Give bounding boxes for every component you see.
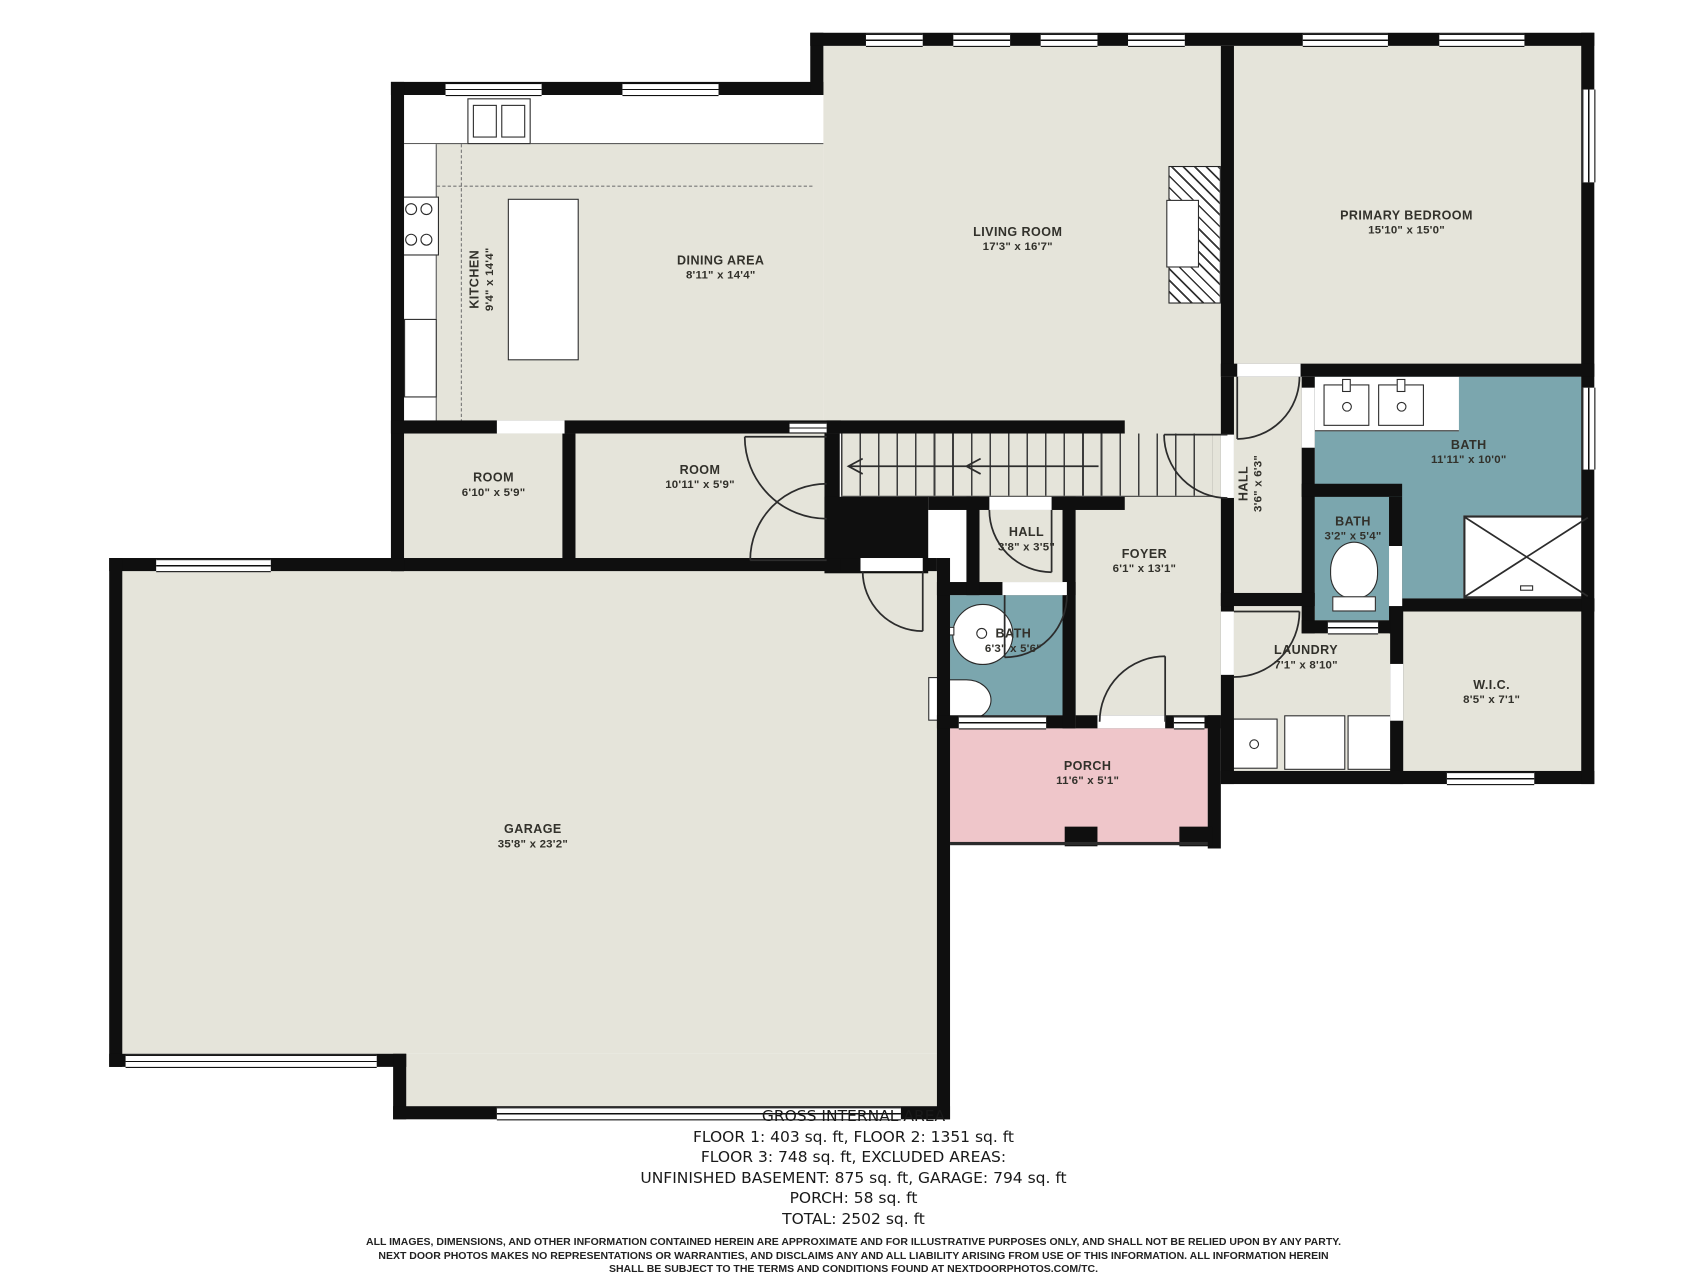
cabinet-dashed-line [437, 186, 813, 187]
room-dims: 6'3" x 5'6" [948, 643, 1079, 657]
cabinet-dashed-line [461, 144, 462, 428]
door-opening [1002, 582, 1066, 595]
faucet-icon [1342, 379, 1351, 392]
summary-line: FLOOR 1: 403 sq. ft, FLOOR 2: 1351 sq. f… [0, 1127, 1707, 1148]
room-dims: 8'5" x 7'1" [1404, 694, 1579, 708]
room-label-bath-main: BATH 6'3" x 5'6" [948, 627, 1079, 657]
wall [109, 558, 122, 1067]
disclaimer-line: NEXT DOOR PHOTOS MAKES NO REPRESENTATION… [0, 1250, 1707, 1264]
disclaimer: ALL IMAGES, DIMENSIONS, AND OTHER INFORM… [0, 1236, 1707, 1277]
wall [1302, 484, 1402, 497]
window [446, 83, 542, 96]
window [126, 1055, 377, 1068]
burner-icon [405, 234, 417, 246]
window [959, 716, 1046, 729]
room-name: HALL [1236, 429, 1252, 538]
window [156, 559, 271, 572]
wall [391, 420, 841, 433]
window [1582, 90, 1595, 183]
room-label-hall-small: HALL 3'8" x 3'5" [972, 525, 1081, 555]
drain-icon [1249, 739, 1259, 749]
room-dims: 10'11" x 5'9" [613, 479, 788, 493]
door-opening [860, 558, 922, 571]
wall [827, 420, 1125, 433]
kitchen-sink-basin [501, 105, 525, 138]
summary-line: UNFINISHED BASEMENT: 875 sq. ft, GARAGE:… [0, 1168, 1707, 1189]
window [1128, 34, 1185, 47]
door-opening [1221, 435, 1234, 498]
floor-garage [122, 571, 937, 1054]
wall [391, 558, 841, 571]
window [1303, 34, 1388, 47]
burner-icon [405, 203, 417, 215]
toilet-tank [1332, 596, 1376, 611]
room-name: BATH [1381, 438, 1556, 454]
floor-primary-bedroom [1234, 46, 1581, 364]
room-dims: 11'6" x 5'1" [1000, 775, 1175, 789]
room-label-laundry: LAUNDRY 7'1" x 8'10" [1219, 643, 1394, 673]
room-dims: 15'10" x 15'0" [1297, 224, 1515, 238]
room-label-wic: W.I.C. 8'5" x 7'1" [1404, 678, 1579, 708]
area-summary: GROSS INTERNAL AREA FLOOR 1: 403 sq. ft,… [0, 1106, 1707, 1229]
window [866, 34, 923, 47]
room-dims: 3'8" x 3'5" [972, 541, 1081, 555]
room-dims: 9'4" x 14'4" [483, 225, 497, 334]
summary-line: PORCH: 58 sq. ft [0, 1188, 1707, 1209]
room-name: BATH [1298, 514, 1407, 530]
wall [1221, 593, 1315, 606]
door-opening [1302, 388, 1315, 448]
wall [391, 82, 404, 571]
room-name: ROOM [613, 463, 788, 479]
room-name: LAUNDRY [1219, 643, 1394, 659]
fireplace-insert [1166, 200, 1199, 268]
room-dims: 35'8" x 23'2" [424, 838, 642, 852]
room-label-hall-vertical: HALL 3'6" x 6'3" [1236, 429, 1266, 538]
summary-title: GROSS INTERNAL AREA [0, 1106, 1707, 1127]
summary-line: FLOOR 3: 748 sq. ft, EXCLUDED AREAS: [0, 1147, 1707, 1168]
window [1447, 772, 1534, 785]
room-name: DINING AREA [633, 253, 808, 269]
toilet-bowl [1330, 542, 1378, 599]
room-name: HALL [972, 525, 1081, 541]
floor-garage-lower [406, 1054, 937, 1106]
room-name: ROOM [417, 471, 570, 487]
room-label-room-2: ROOM 10'11" x 5'9" [613, 463, 788, 493]
kitchen-island [508, 199, 579, 361]
room-label-bath-primary: BATH 11'11" x 10'0" [1381, 438, 1556, 468]
wall [1221, 771, 1594, 784]
window [1582, 388, 1595, 470]
room-name: W.I.C. [1404, 678, 1579, 694]
burner-icon [420, 203, 432, 215]
room-label-living: LIVING ROOM 17'3" x 16'7" [930, 225, 1105, 255]
room-name: FOYER [1079, 547, 1210, 563]
porch-edge [950, 842, 1208, 845]
room-dims: 6'1" x 13'1" [1079, 563, 1210, 577]
room-name: GARAGE [424, 822, 642, 838]
summary-line: TOTAL: 2502 sq. ft [0, 1209, 1707, 1230]
drain-icon [1342, 402, 1352, 412]
room-dims: 11'11" x 10'0" [1381, 454, 1556, 468]
room-name: BATH [948, 627, 1079, 643]
door-opening [1389, 546, 1402, 606]
window [790, 423, 827, 434]
window [1174, 716, 1205, 729]
wall [1581, 598, 1594, 784]
room-dims: 3'6" x 6'3" [1252, 429, 1266, 538]
faucet-icon [1397, 379, 1406, 392]
shower-valve-icon [1520, 585, 1533, 590]
room-label-kitchen: KITCHEN 9'4" x 14'4" [468, 225, 498, 334]
kitchen-sink-basin [473, 105, 497, 138]
wall [1221, 46, 1234, 377]
room-name: KITCHEN [468, 225, 484, 334]
disclaimer-line: SHALL BE SUBJECT TO THE TERMS AND CONDIT… [0, 1263, 1707, 1277]
washer [1284, 715, 1345, 770]
room-name: PRIMARY BEDROOM [1297, 209, 1515, 225]
window [622, 83, 718, 96]
room-label-bath-small: BATH 3'2" x 5'4" [1298, 514, 1407, 544]
room-label-primary-bedroom: PRIMARY BEDROOM 15'10" x 15'0" [1297, 209, 1515, 239]
door-opening [1097, 715, 1165, 728]
wall [1402, 598, 1594, 611]
door-opening [1237, 364, 1300, 377]
room-label-dining: DINING AREA 8'11" x 14'4" [633, 253, 808, 283]
window [1439, 34, 1524, 47]
floor-foyer [1076, 497, 1221, 729]
room-label-garage: GARAGE 35'8" x 23'2" [424, 822, 642, 852]
room-dims: 8'11" x 14'4" [633, 269, 808, 283]
window [1041, 34, 1098, 47]
room-dims: 3'2" x 5'4" [1298, 530, 1407, 544]
room-label-foyer: FOYER 6'1" x 13'1" [1079, 547, 1210, 577]
staircase [841, 434, 1212, 497]
room-label-porch: PORCH 11'6" x 5'1" [1000, 759, 1175, 789]
floor-room-2 [575, 434, 824, 558]
door-opening [989, 497, 1051, 510]
floorplan: KITCHEN 9'4" x 14'4" DINING AREA 8'11" x… [0, 0, 1707, 1281]
room-dims: 6'10" x 5'9" [417, 486, 570, 500]
disclaimer-line: ALL IMAGES, DIMENSIONS, AND OTHER INFORM… [0, 1236, 1707, 1250]
room-label-room-1: ROOM 6'10" x 5'9" [417, 471, 570, 501]
drain-icon [1397, 402, 1407, 412]
burner-icon [420, 234, 432, 246]
window [1328, 621, 1378, 634]
room-name: PORCH [1000, 759, 1175, 775]
room-dims: 17'3" x 16'7" [930, 241, 1105, 255]
room-name: LIVING ROOM [930, 225, 1105, 241]
room-dims: 7'1" x 8'10" [1219, 659, 1394, 673]
window [953, 34, 1010, 47]
door-opening [497, 420, 565, 433]
refrigerator [404, 319, 437, 398]
